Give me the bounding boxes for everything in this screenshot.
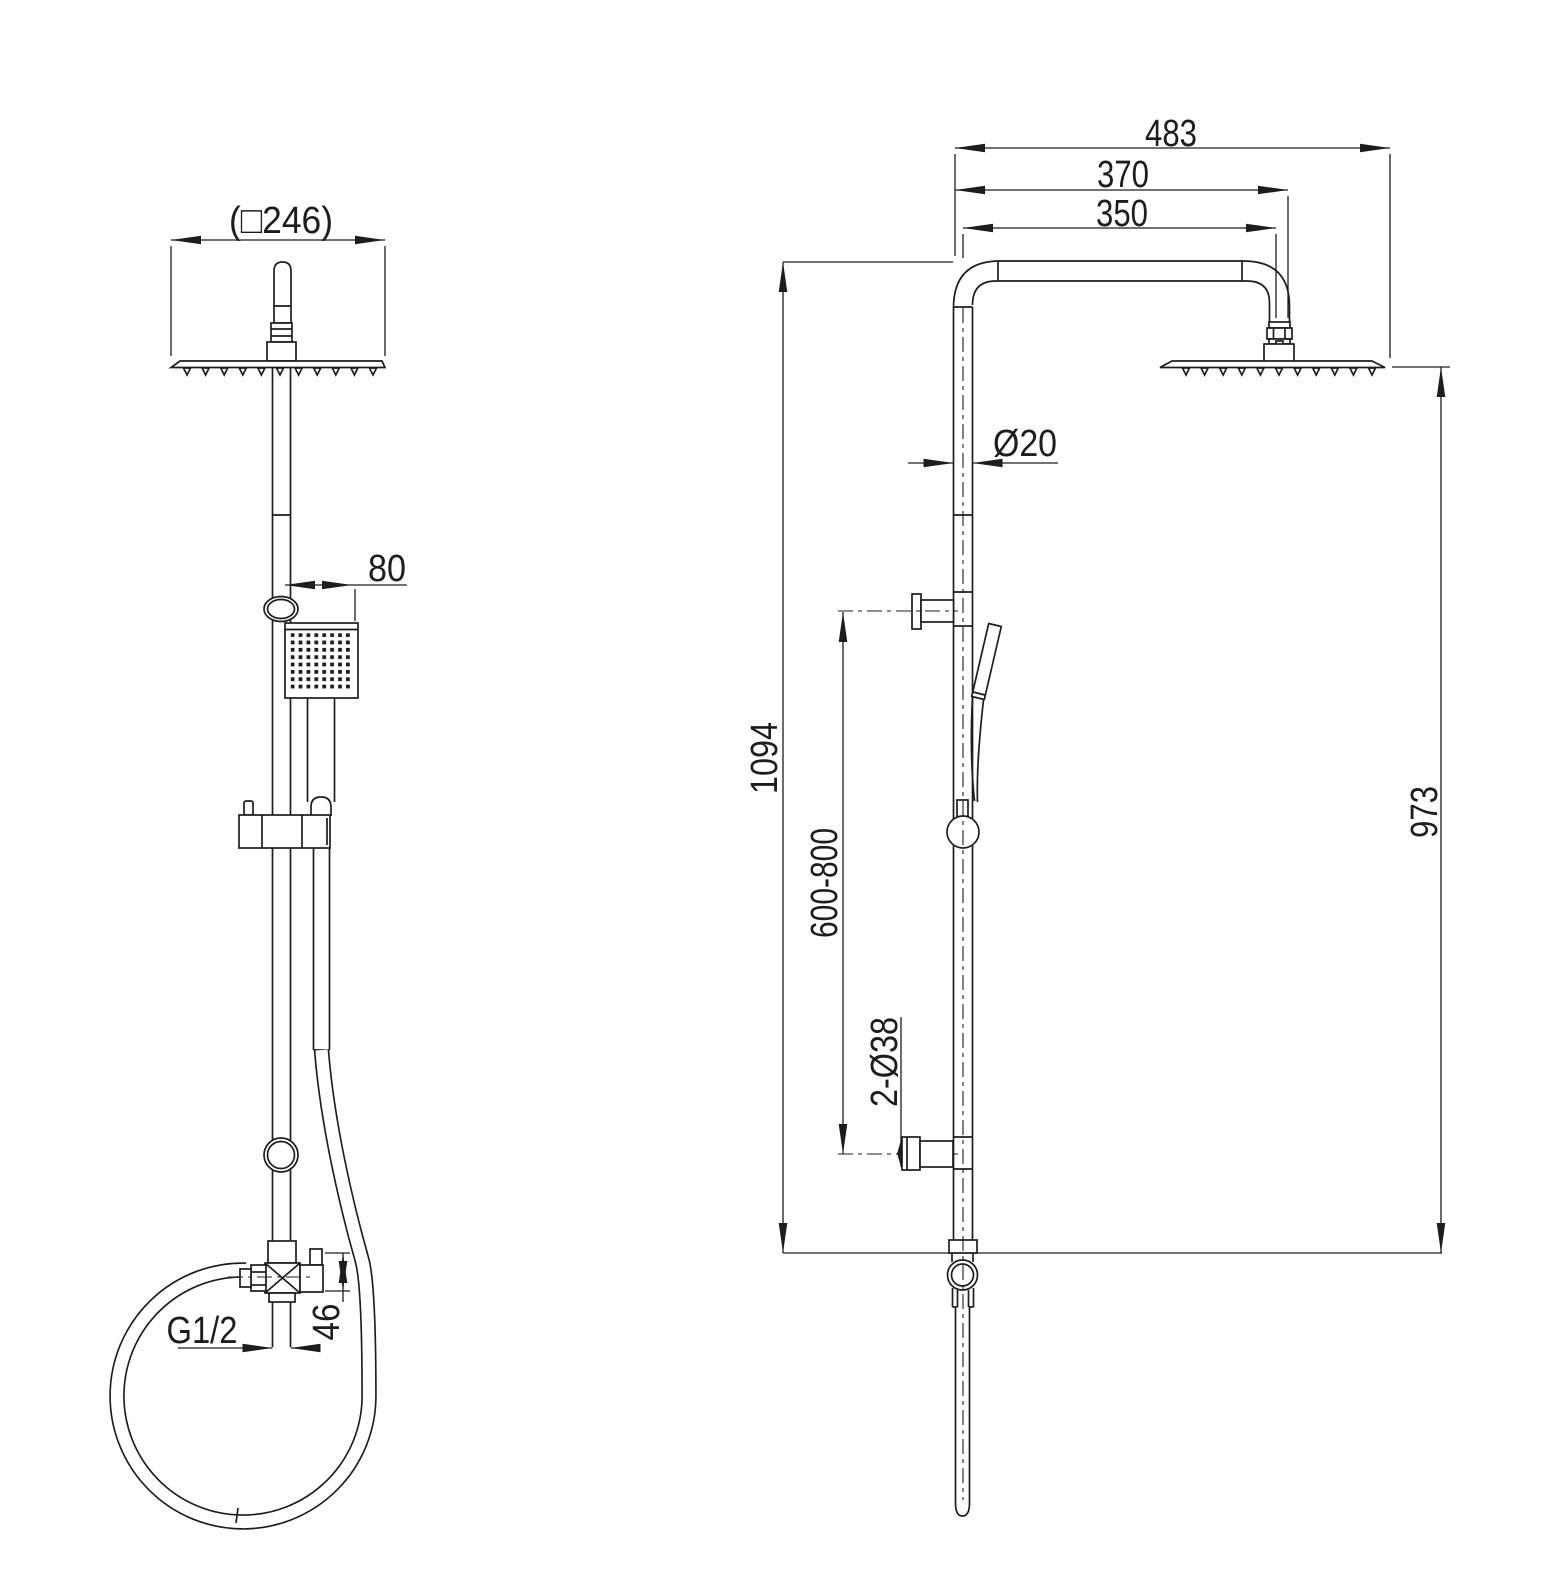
rain-head-nozzles-front xyxy=(184,368,377,375)
dim-inlet-thread-label: G1/2 xyxy=(167,1310,238,1352)
dimension-arm-total-reach: 483 xyxy=(955,113,1390,358)
dim-arm-total-reach-label: 483 xyxy=(1145,113,1197,155)
rain-shower-head-front xyxy=(171,262,385,375)
dimension-arm-length: 350 xyxy=(963,193,1276,318)
shower-arm-side xyxy=(954,261,1290,322)
dim-arm-reach-to-joint-label: 370 xyxy=(1097,154,1149,196)
dimension-arm-reach-to-joint: 370 xyxy=(955,154,1288,318)
dim-outlet-height-label: 46 xyxy=(306,1304,348,1341)
dimension-pipe-diameter: Ø20 xyxy=(908,423,1058,467)
dim-arm-length-label: 350 xyxy=(1096,193,1148,235)
dim-pipe-diameter-label: Ø20 xyxy=(993,423,1057,465)
wall-bracket-bottom xyxy=(902,1137,953,1170)
rain-shower-head-side xyxy=(1160,322,1385,375)
dim-column-height-label: 973 xyxy=(1404,786,1446,838)
hand-shower-front xyxy=(285,623,358,816)
hand-shower-handle-tube xyxy=(314,848,330,1050)
dimension-hand-shower-width: 80 xyxy=(285,548,407,621)
side-view: 483 370 350 Ø20 xyxy=(744,113,1450,1516)
rain-head-nozzles-side xyxy=(1183,368,1376,375)
dimension-overall-height: 1094 xyxy=(744,262,1442,1253)
dimension-column-height: 973 xyxy=(1392,367,1450,1253)
front-view: (□246) 80 xyxy=(117,200,407,1523)
hand-shower-side xyxy=(947,624,1001,849)
dimension-inlet-thread: G1/2 xyxy=(167,1310,321,1352)
slider-knob-front xyxy=(264,1138,298,1172)
hand-shower-ring-holder xyxy=(264,597,298,622)
dim-overall-height-label: 1094 xyxy=(744,722,786,794)
dimension-flange-diameter: 2-Ø38 xyxy=(864,1017,906,1167)
dim-bracket-range-label: 600-800 xyxy=(804,828,846,938)
dim-flange-diameter-label: 2-Ø38 xyxy=(864,1017,906,1107)
hand-shower-nozzle-grid xyxy=(291,633,352,690)
technical-drawing-page: (□246) 80 xyxy=(0,0,1568,1568)
riser-pipe-front xyxy=(273,368,291,1241)
shower-system-drawing: (□246) 80 xyxy=(0,0,1568,1568)
dim-head-width-label: (□246) xyxy=(229,200,333,242)
dim-hand-shower-width-label: 80 xyxy=(368,548,406,590)
